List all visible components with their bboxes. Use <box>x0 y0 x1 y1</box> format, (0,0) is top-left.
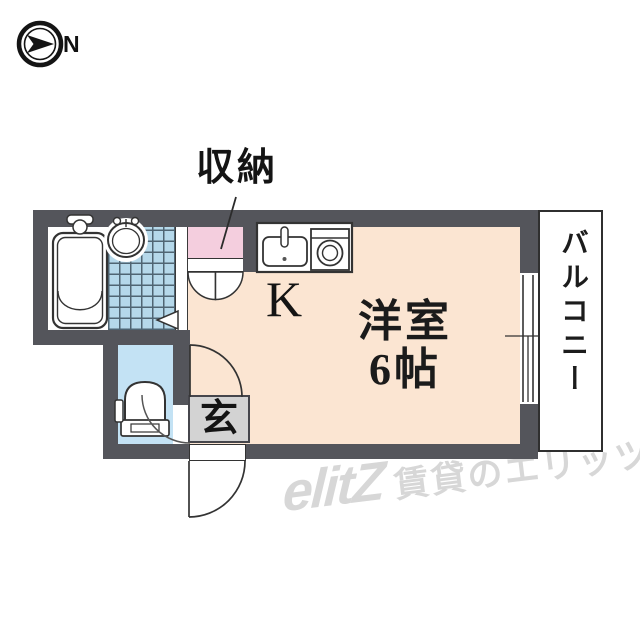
toilet-icon <box>115 382 169 436</box>
sliding-window <box>505 275 540 402</box>
kitchen-label: K <box>266 272 302 327</box>
stove-icon <box>311 229 349 270</box>
closet-leader-line <box>221 197 236 249</box>
floorplan-canvas: elitZ 賃貸のエリッツ バルコニー 玄 <box>0 0 640 640</box>
door-triangle <box>157 311 178 329</box>
balcony-label: バルコニー <box>552 228 592 438</box>
main-room-size: 6帖 <box>330 346 480 394</box>
main-room-name: 洋室 <box>330 298 480 346</box>
washbasin-icon <box>104 218 148 263</box>
bathtub-icon <box>53 215 107 328</box>
closet-label: 収納 <box>172 148 302 190</box>
closet-door-arcs <box>188 272 243 300</box>
main-room-label: 洋室 6帖 <box>330 298 480 395</box>
entrance-door-arc <box>189 461 245 517</box>
fixtures-layer <box>0 0 640 640</box>
north-label: N <box>63 32 80 57</box>
compass-icon <box>19 23 61 65</box>
hall-door-arc <box>190 345 242 397</box>
kitchen-counter <box>257 223 352 272</box>
